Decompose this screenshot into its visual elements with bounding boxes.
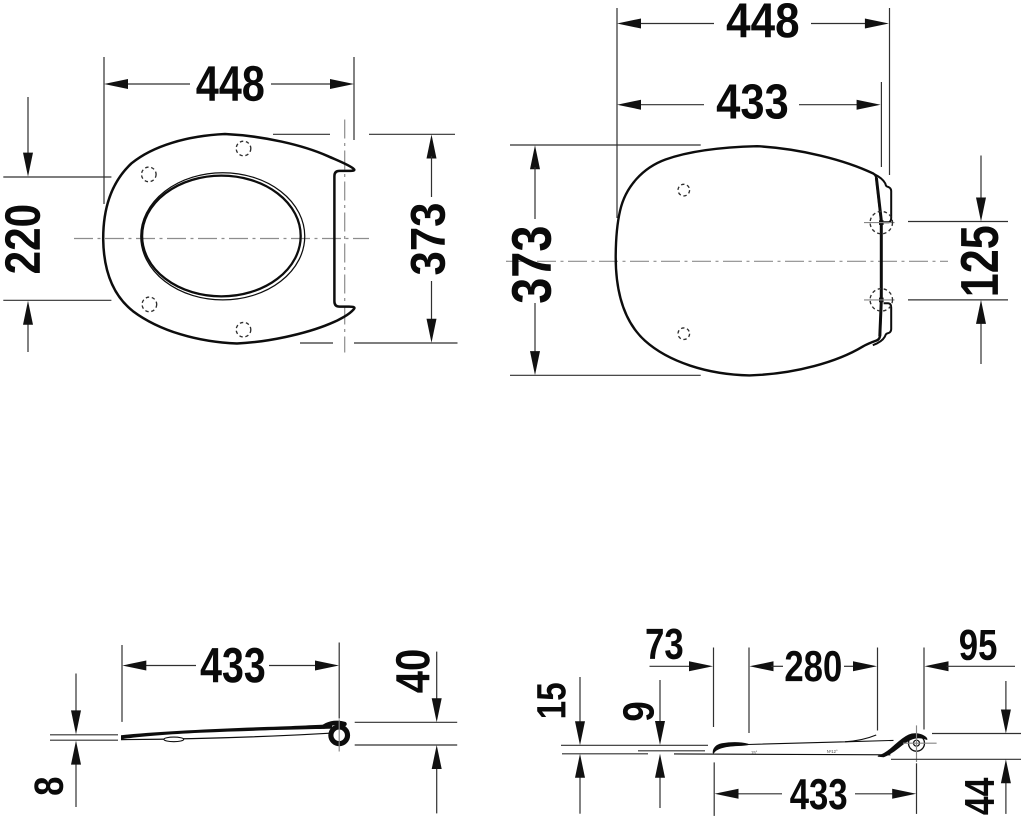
svg-text:15°: 15° xyxy=(751,750,758,755)
svg-text:Nº12°: Nº12° xyxy=(827,749,838,754)
